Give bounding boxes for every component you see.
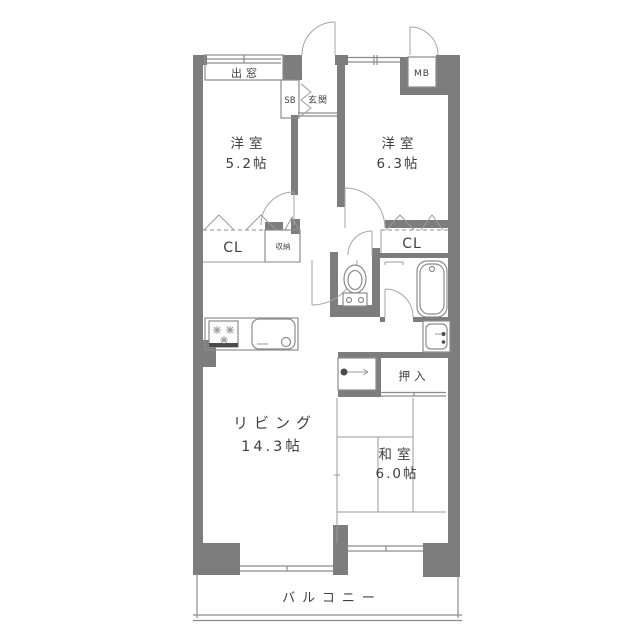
bathroom-door	[385, 289, 413, 317]
oshiire-sliding-door	[381, 393, 446, 397]
bedroom-right-size: 6.3帖	[377, 156, 420, 172]
bedroom-right-door	[345, 188, 385, 228]
floorplan: 出窓 SB 玄関 MB 洋室 5.2帖 洋室 6.3帖 CL 収納 CL 押入 …	[0, 0, 640, 640]
walls	[193, 55, 460, 577]
meter-box-label: MB	[414, 69, 430, 79]
meter-box-door	[410, 27, 438, 55]
oshiire-label: 押入	[399, 369, 430, 383]
bedroom-left-size: 5.2帖	[226, 156, 269, 172]
kitchen-stove-icon	[209, 321, 238, 347]
bathroom-shelf	[385, 262, 403, 265]
shoe-box-label: SB	[284, 96, 295, 106]
living-size: 14.3帖	[241, 438, 303, 455]
toilet-door	[348, 231, 372, 255]
japanese-room-balcony-window	[348, 546, 423, 551]
toilet-icon	[343, 265, 367, 306]
bedroom-left-name: 洋室	[231, 135, 268, 152]
japanese-room-name: 和室	[379, 446, 416, 463]
closet-left-label: CL	[223, 240, 243, 256]
closet-right-label: CL	[402, 236, 422, 252]
washbasin-icon	[423, 321, 450, 352]
small-closet-arrow	[341, 369, 369, 376]
balcony-label: バルコニー	[282, 591, 382, 606]
bedroom-right-name: 洋室	[382, 135, 419, 152]
living-japanese-partition	[334, 398, 340, 543]
entrance-door	[302, 22, 335, 55]
entrance-label: 玄関	[308, 94, 328, 106]
kitchen-sink-icon	[252, 319, 295, 349]
bedroom-right-window	[348, 55, 400, 65]
living-name: リビング	[233, 414, 317, 432]
living-balcony-window	[240, 566, 333, 571]
bathtub-icon	[417, 261, 447, 317]
storage-label: 収納	[276, 241, 291, 251]
bay-window-label: 出窓	[231, 66, 261, 80]
floorplan-drawing: 出窓 SB 玄関 MB 洋室 5.2帖 洋室 6.3帖 CL 収納 CL 押入 …	[0, 0, 640, 640]
japanese-room-size: 6.0帖	[376, 466, 419, 482]
